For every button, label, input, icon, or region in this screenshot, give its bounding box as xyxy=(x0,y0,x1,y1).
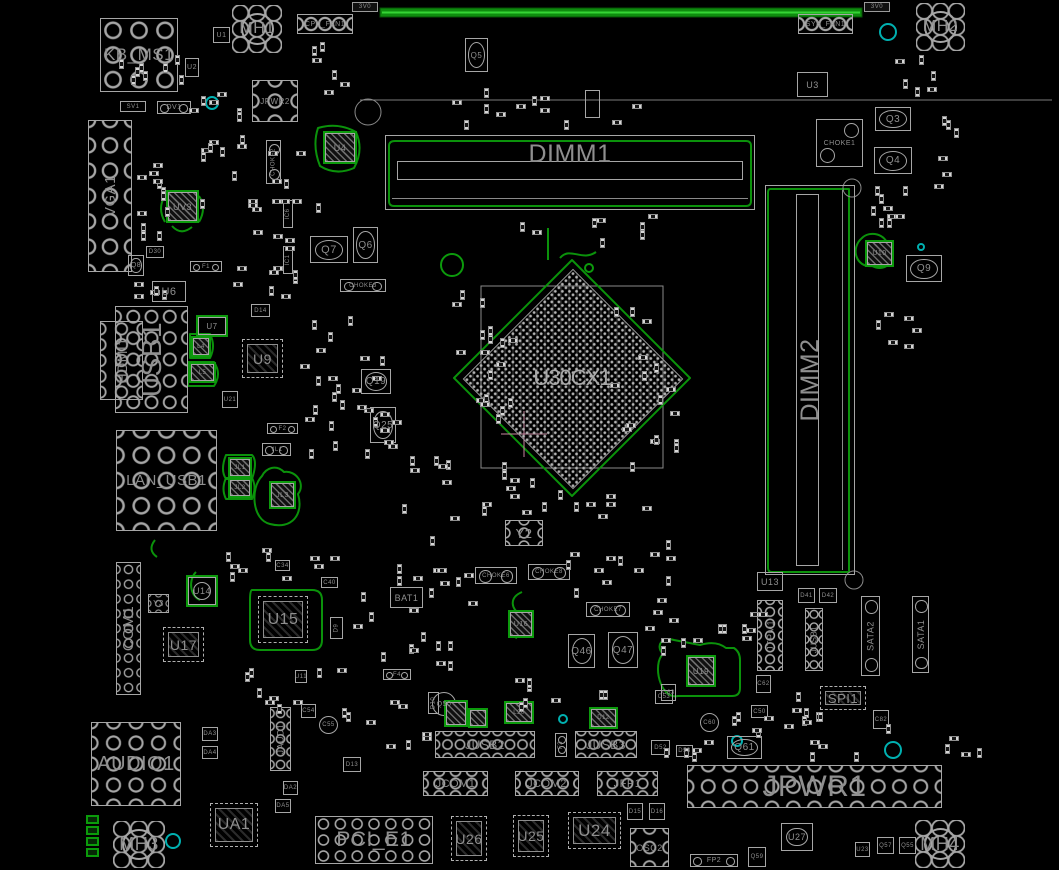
passive-component xyxy=(348,316,353,326)
component-d12[interactable]: D12 xyxy=(591,709,616,727)
passive-component xyxy=(410,468,420,473)
passive-component xyxy=(309,449,314,459)
passive-component xyxy=(272,199,282,204)
connector-jcom1[interactable]: JCOM1 xyxy=(423,771,488,796)
component-u7[interactable]: U7 xyxy=(198,317,226,335)
passive-component xyxy=(464,120,469,130)
component-label: Q9 xyxy=(907,256,941,281)
passive-component xyxy=(496,362,506,367)
component-c34[interactable]: C34 xyxy=(275,560,290,571)
passive-component xyxy=(468,601,478,606)
component-q57[interactable]: Q57 xyxy=(877,837,894,854)
passive-component xyxy=(654,363,659,373)
passive-component xyxy=(895,59,905,64)
component-c40[interactable]: C40 xyxy=(321,577,338,588)
green-pad xyxy=(86,848,99,857)
passive-component xyxy=(488,326,493,336)
unlabeled-component xyxy=(585,90,600,118)
cpu-bga-u30cx1[interactable]: U30CX1 xyxy=(462,268,682,488)
connector-y2[interactable]: Y2 xyxy=(505,520,543,546)
component-label: JAUD1 xyxy=(250,730,312,749)
passive-component xyxy=(332,70,337,80)
component-label: U7 xyxy=(199,318,225,334)
component-label: D13 xyxy=(344,758,360,771)
component-q4[interactable]: Q4 xyxy=(874,147,912,174)
component-fp2[interactable]: FP2 xyxy=(690,854,738,867)
passive-component xyxy=(883,206,893,211)
connector-jusb1[interactable]: JUSB1 xyxy=(805,608,823,671)
passive-component xyxy=(606,502,616,507)
component-label: YL1 xyxy=(263,444,290,455)
component-label: Q61 xyxy=(728,737,761,758)
passive-component xyxy=(931,71,936,81)
passive-component xyxy=(245,672,250,682)
component-label: Q3 xyxy=(876,108,910,130)
component-d16[interactable]: D16 xyxy=(649,803,665,820)
passive-component xyxy=(266,552,271,562)
component-da3[interactable]: DA3 xyxy=(202,727,218,741)
component-label: U9 xyxy=(243,340,282,377)
component-q47[interactable]: Q47 xyxy=(608,632,638,668)
passive-component xyxy=(640,230,645,240)
component-choke6[interactable]: CHOKE6 xyxy=(475,567,517,584)
component-choke1[interactable]: CHOKE1 xyxy=(816,119,863,167)
connector-com1[interactable]: COM1 xyxy=(116,562,141,695)
component-d9[interactable]: D9 xyxy=(330,617,343,639)
passive-component xyxy=(284,179,289,189)
passive-component xyxy=(480,402,490,407)
component-uv3[interactable]: UV3 xyxy=(168,192,197,221)
component-ic6[interactable]: IC6 xyxy=(283,200,293,228)
component-label: D9 xyxy=(327,623,347,634)
component-q5[interactable]: Q5 xyxy=(465,38,488,72)
component-u24[interactable]: U24 xyxy=(568,812,621,849)
passive-component xyxy=(886,724,891,734)
component-label: DA2 xyxy=(284,782,297,794)
connector-sata2[interactable]: SATA2 xyxy=(861,596,880,676)
component-c62[interactable]: C62 xyxy=(756,675,771,693)
passive-component xyxy=(436,661,446,666)
passive-component xyxy=(137,211,147,216)
component-c55[interactable]: C55 xyxy=(319,716,338,734)
component-layer: KB_MS1MH1U1U2CPU_FAN1JPWR2DV1SV1Q5SYS_FA… xyxy=(0,0,1059,870)
passive-component xyxy=(532,230,542,235)
passive-component xyxy=(292,199,302,204)
passive-component xyxy=(594,568,604,573)
passive-component xyxy=(742,636,752,641)
component-q7[interactable]: Q7 xyxy=(310,236,348,263)
component-q59[interactable]: Q59 xyxy=(748,847,766,867)
component-label: DA4 xyxy=(203,747,217,758)
component-choke7[interactable]: CHOKE7 xyxy=(586,602,630,617)
passive-component xyxy=(618,556,623,566)
component-d15[interactable]: D15 xyxy=(627,803,643,820)
passive-component xyxy=(153,179,163,184)
connector-kb-ms1[interactable]: KB_MS1 xyxy=(100,18,178,92)
component-d30[interactable]: D30 xyxy=(146,246,164,258)
component-u21[interactable]: U21 xyxy=(222,391,238,408)
passive-component xyxy=(887,218,892,228)
component-u15[interactable]: U15 xyxy=(258,596,308,643)
passive-component xyxy=(162,290,167,300)
passive-component xyxy=(340,400,345,410)
passive-component xyxy=(722,624,727,634)
passive-component xyxy=(484,88,489,98)
passive-component xyxy=(515,678,525,683)
connector-jpwr1[interactable]: JPWR1 xyxy=(687,765,942,808)
component-q19[interactable]: Q19 xyxy=(361,369,391,394)
component-label: CHOKE6 xyxy=(476,568,516,583)
passive-component xyxy=(161,191,166,201)
component-label: JL3 xyxy=(272,484,293,506)
passive-component xyxy=(657,598,667,603)
component-f1[interactable]: F1 xyxy=(190,261,222,272)
passive-component xyxy=(666,387,676,392)
connector-jfp1[interactable]: JFP1 xyxy=(597,771,658,796)
passive-component xyxy=(610,383,620,388)
passive-component xyxy=(602,580,612,585)
component-ua1[interactable]: UA1 xyxy=(210,803,258,847)
passive-component xyxy=(456,350,466,355)
component-label: Q46 xyxy=(569,635,594,667)
component-sv1[interactable]: SV1 xyxy=(120,101,146,112)
passive-component xyxy=(189,108,199,113)
component-label: IC1 xyxy=(275,256,301,264)
component-q55[interactable]: Q55 xyxy=(899,837,916,854)
component-label: F1 xyxy=(191,262,221,271)
component-u3[interactable]: U3 xyxy=(797,72,828,97)
passive-component xyxy=(337,668,347,673)
component-label: F2 xyxy=(268,424,297,433)
component-label: UV3 xyxy=(169,193,196,220)
connector-sata1[interactable]: SATA1 xyxy=(912,596,929,673)
component-d42[interactable]: D42 xyxy=(819,588,837,603)
component-choke2[interactable]: CHOKE2 xyxy=(266,140,281,184)
component-label: D15 xyxy=(628,804,642,819)
component-label: U4 xyxy=(326,134,354,161)
passive-component xyxy=(413,576,423,581)
component-label: SYS_FAN1 xyxy=(799,15,852,33)
passive-component xyxy=(460,290,465,300)
passive-component xyxy=(642,319,652,324)
connector-osc2[interactable]: OSC2 xyxy=(630,828,669,867)
component-u9[interactable]: U9 xyxy=(242,339,283,378)
component-choke8[interactable]: CHOKE8 xyxy=(528,564,570,580)
passive-component xyxy=(324,90,334,95)
passive-component xyxy=(139,63,144,73)
component-jl1[interactable]: JL1 xyxy=(230,459,250,476)
component-dv1[interactable]: DV1 xyxy=(157,101,191,114)
component-label: Q47 xyxy=(609,633,637,667)
component-u2[interactable]: U2 xyxy=(185,58,199,77)
passive-component xyxy=(384,440,394,445)
passive-component xyxy=(201,96,206,106)
passive-component xyxy=(149,171,159,176)
component-3v0[interactable]: 3V0 xyxy=(352,2,378,12)
connector-audio1[interactable]: AUDIO1 xyxy=(91,722,181,806)
passive-component xyxy=(540,108,550,113)
passive-component xyxy=(516,104,526,109)
mounting-hole-mh4[interactable]: MH4 xyxy=(915,820,965,868)
component-u1[interactable]: U1 xyxy=(213,27,230,43)
component-d10[interactable]: D10 xyxy=(428,692,439,714)
passive-component xyxy=(945,744,950,754)
passive-component xyxy=(904,344,914,349)
passive-component xyxy=(397,564,402,574)
connector-jusb2[interactable]: JUSB2 xyxy=(435,731,535,758)
passive-component xyxy=(452,100,462,105)
component-label: MH4 xyxy=(915,820,965,868)
passive-component xyxy=(209,100,219,105)
component-u19[interactable]: U19 xyxy=(688,657,714,685)
component-label: JUSB2 xyxy=(436,732,534,757)
component-label: DA3 xyxy=(203,728,217,740)
passive-component xyxy=(273,266,283,271)
passive-component xyxy=(305,417,315,422)
passive-component xyxy=(410,456,415,466)
passive-component xyxy=(919,55,924,65)
connector-jtpm1[interactable]: JTPM1 xyxy=(757,600,783,671)
passive-component xyxy=(854,752,859,762)
passive-component xyxy=(634,568,644,573)
component-label: JFP1 xyxy=(598,772,657,795)
component-f3[interactable]: F3 xyxy=(555,733,567,757)
passive-component xyxy=(606,556,616,561)
passive-component xyxy=(540,96,550,101)
component-label: DA5 xyxy=(276,800,290,812)
connector-lan-usb1[interactable]: LAN_USB1 xyxy=(116,430,217,531)
passive-component xyxy=(520,222,525,232)
component-q6[interactable]: Q6 xyxy=(353,227,378,263)
component-3v0[interactable]: 3V0 xyxy=(864,2,890,12)
component-u4[interactable]: U4 xyxy=(325,133,355,162)
passive-component xyxy=(666,556,676,561)
component-u13[interactable]: U13 xyxy=(757,572,783,591)
passive-component xyxy=(592,218,597,228)
passive-component xyxy=(879,194,884,204)
component-u11[interactable]: U11 xyxy=(295,670,307,683)
connector-y3[interactable]: Y3 xyxy=(148,594,169,613)
passive-component xyxy=(666,576,671,586)
component-label: CHOKE3 xyxy=(341,280,385,291)
green-connector xyxy=(86,815,99,859)
passive-component xyxy=(372,376,382,381)
passive-component xyxy=(336,384,341,394)
passive-component xyxy=(165,207,170,217)
passive-component xyxy=(519,702,524,712)
passive-component xyxy=(450,516,460,521)
component-q61[interactable]: Q61 xyxy=(727,736,762,759)
passive-component xyxy=(226,552,231,562)
passive-component xyxy=(746,628,756,633)
passive-component xyxy=(248,203,258,208)
connector-vga1[interactable]: VGA1 xyxy=(88,120,132,272)
component-da4[interactable]: DA4 xyxy=(202,746,218,759)
passive-component xyxy=(366,720,376,725)
component-da5[interactable]: DA5 xyxy=(275,799,291,813)
component-label: U25 xyxy=(514,816,548,856)
component-label: DIMM1 xyxy=(386,136,754,209)
connector-pci-e1[interactable]: PCI_E1 xyxy=(315,816,433,864)
passive-component xyxy=(645,626,655,631)
component-yl1[interactable]: YL1 xyxy=(262,443,291,456)
component-f2[interactable]: F2 xyxy=(267,423,298,434)
component-q8[interactable]: Q8 xyxy=(128,255,144,276)
unlabeled-component xyxy=(470,710,486,726)
component-u17[interactable]: U17 xyxy=(163,627,204,662)
connector-dimm2[interactable]: DIMM2 xyxy=(765,185,855,575)
connector-dimm1[interactable]: DIMM1 xyxy=(385,135,755,210)
component-label: JUSB1 xyxy=(784,632,845,648)
passive-component xyxy=(421,632,426,642)
component-u26[interactable]: U26 xyxy=(451,816,487,861)
passive-component xyxy=(752,728,762,733)
passive-component xyxy=(153,163,163,168)
passive-component xyxy=(406,740,411,750)
component-u23[interactable]: U23 xyxy=(855,842,870,857)
connector-sys-fan1[interactable]: SYS_FAN1 xyxy=(798,14,853,34)
passive-component xyxy=(220,147,225,157)
component-u14[interactable]: U14 xyxy=(188,577,216,605)
passive-component xyxy=(269,286,274,296)
component-label: MH3 xyxy=(113,821,165,868)
component-q9[interactable]: Q9 xyxy=(906,255,942,282)
passive-component xyxy=(380,412,390,417)
connector-jcom2[interactable]: JCOM2 xyxy=(515,771,579,796)
passive-component xyxy=(380,428,390,433)
component-spi1[interactable]: SPI1 xyxy=(820,686,866,710)
component-label: 3V0 xyxy=(353,3,377,11)
mounting-hole-mh1[interactable]: MH1 xyxy=(232,5,282,53)
passive-component xyxy=(664,748,669,758)
component-label: U15 xyxy=(259,597,307,642)
component-f4[interactable]: F4 xyxy=(383,669,411,680)
passive-component xyxy=(612,120,622,125)
component-c60[interactable]: C60 xyxy=(700,713,719,732)
component-label: D41 xyxy=(799,589,814,602)
passive-component xyxy=(314,564,324,569)
component-label: D12 xyxy=(592,710,615,726)
component-label: L4 xyxy=(194,339,208,354)
passive-component xyxy=(566,560,571,570)
passive-component xyxy=(328,332,333,342)
component-u16[interactable]: U16 xyxy=(510,612,532,636)
component-label: DV1 xyxy=(158,102,190,113)
passive-component xyxy=(895,214,905,219)
connector-jaud1[interactable]: JAUD1 xyxy=(270,707,291,771)
component-u25[interactable]: U25 xyxy=(513,815,549,857)
passive-component xyxy=(599,690,604,700)
passive-component xyxy=(500,406,505,416)
component-label: D30 xyxy=(147,247,163,257)
component-c53[interactable]: C53 xyxy=(655,690,673,704)
component-l4[interactable]: L4 xyxy=(193,338,209,355)
passive-component xyxy=(282,576,292,581)
component-label: Q19 xyxy=(362,370,390,393)
component-label: Q5 xyxy=(466,39,487,71)
passive-component xyxy=(456,577,461,587)
passive-component xyxy=(269,696,279,701)
component-u27[interactable]: U27 xyxy=(781,823,813,851)
component-d13[interactable]: D13 xyxy=(343,757,361,772)
component-label: SPI1 xyxy=(821,687,865,709)
mounting-hole-mh3[interactable]: MH3 xyxy=(113,821,165,868)
passive-component xyxy=(792,708,802,713)
passive-component xyxy=(949,736,959,741)
passive-component xyxy=(938,156,948,161)
passive-component xyxy=(606,494,616,499)
passive-component xyxy=(942,116,947,126)
component-d41[interactable]: D41 xyxy=(798,588,815,603)
passive-component xyxy=(381,652,386,662)
component-jl3[interactable]: JL3 xyxy=(271,483,294,507)
passive-component xyxy=(482,502,492,507)
component-label: OSC2 xyxy=(631,829,668,866)
component-label: JL2 xyxy=(231,481,249,495)
passive-component xyxy=(586,502,596,507)
connector-hdmi1[interactable]: HDMI1 xyxy=(100,321,143,400)
bga-ball-grid xyxy=(463,269,684,490)
pcb-board-view[interactable]: KB_MS1MH1U1U2CPU_FAN1JPWR2DV1SV1Q5SYS_FA… xyxy=(0,0,1059,870)
passive-component xyxy=(137,175,147,180)
component-bat1[interactable]: BAT1 xyxy=(390,587,423,608)
component-label: D42 xyxy=(820,589,836,602)
passive-component xyxy=(758,612,768,617)
passive-component xyxy=(558,490,563,500)
passive-component xyxy=(380,356,385,366)
passive-component xyxy=(436,641,441,651)
passive-component xyxy=(257,688,262,698)
component-label: CHOKE2 xyxy=(253,156,295,169)
connector-jpwr2[interactable]: JPWR2 xyxy=(252,80,298,122)
passive-component xyxy=(268,151,278,156)
component-q3[interactable]: Q3 xyxy=(875,107,911,131)
passive-component xyxy=(402,504,407,514)
passive-component xyxy=(818,712,823,722)
component-jl2[interactable]: JL2 xyxy=(230,480,250,496)
component-q46[interactable]: Q46 xyxy=(568,634,595,668)
mounting-hole-mh2[interactable]: MH2 xyxy=(916,3,965,51)
connector-jusb3[interactable]: JUSB3 xyxy=(575,731,637,758)
passive-component xyxy=(312,58,322,63)
component-da2[interactable]: DA2 xyxy=(283,781,298,795)
component-label: U17 xyxy=(164,628,203,661)
component-label: U2 xyxy=(186,59,198,76)
component-label: 3V0 xyxy=(865,3,889,11)
passive-component xyxy=(903,186,908,196)
component-l5[interactable]: L5 xyxy=(191,364,214,381)
connector-cpu-fan1[interactable]: CPU_FAN1 xyxy=(297,14,353,34)
component-choke3[interactable]: CHOKE3 xyxy=(340,279,386,292)
passive-component xyxy=(317,668,322,678)
component-label: UA1 xyxy=(211,804,257,846)
passive-component xyxy=(293,700,303,705)
passive-component xyxy=(626,423,636,428)
component-c54[interactable]: C54 xyxy=(301,704,316,718)
unlabeled-component xyxy=(446,702,466,725)
component-label: MH2 xyxy=(916,3,965,51)
component-u10[interactable]: U10 xyxy=(867,242,892,265)
component-label: AUDIO1 xyxy=(92,723,180,805)
passive-component xyxy=(285,238,295,243)
component-label: U24 xyxy=(569,813,620,848)
passive-component xyxy=(163,63,168,73)
passive-component xyxy=(440,581,450,586)
component-label: L5 xyxy=(192,365,213,380)
component-d14[interactable]: D14 xyxy=(251,304,270,317)
passive-component xyxy=(313,405,318,415)
passive-component xyxy=(570,552,580,557)
